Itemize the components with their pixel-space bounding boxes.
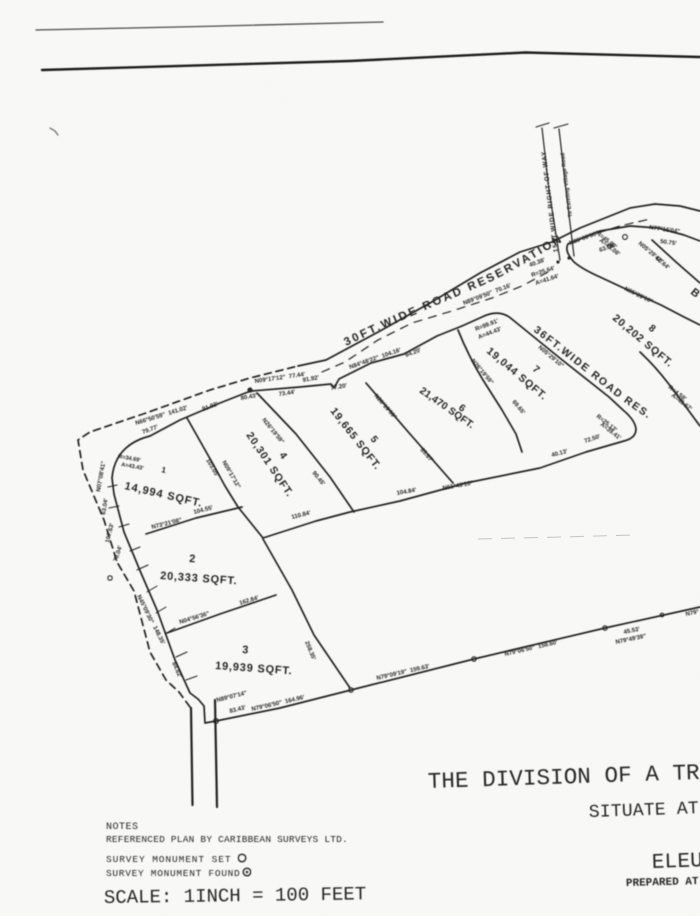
- svg-text:PREPARED AT: PREPARED AT: [626, 876, 699, 890]
- svg-text:ELEU: ELEU: [651, 850, 700, 875]
- svg-text:3: 3: [242, 644, 249, 656]
- svg-text:SITUATE AT: SITUATE AT: [589, 799, 700, 823]
- svg-text:REFERENCED PLAN BY CARIBBEAN S: REFERENCED PLAN BY CARIBBEAN SURVEYS LTD…: [106, 834, 348, 845]
- svg-text:NOTES: NOTES: [106, 822, 139, 833]
- svg-text:SURVEY MONUMENT SET: SURVEY MONUMENT SET: [106, 854, 231, 865]
- svg-text:SCALE: 1INCH = 100 FEET: SCALE: 1INCH = 100 FEET: [104, 883, 367, 909]
- svg-text:SURVEY MONUMENT FOUND: SURVEY MONUMENT FOUND: [106, 868, 240, 879]
- svg-text:2: 2: [189, 553, 196, 565]
